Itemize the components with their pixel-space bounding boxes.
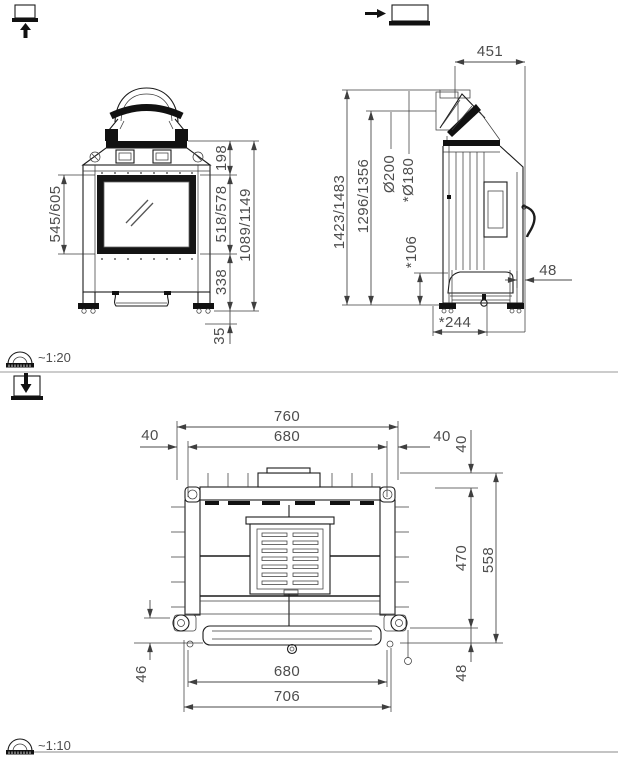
stove-window: [97, 175, 196, 254]
dim-top-inner-width-bottom: 680: [274, 663, 300, 680]
dim-front-feet-height: 35: [211, 327, 228, 345]
side-view-drawing: 451 1423/1483 1296/1356 Ø200 *Ø180 *106 …: [331, 43, 572, 336]
dim-front-glass-height: 545/605: [47, 185, 64, 242]
technical-drawing-page: 545/605 198 518/578 338 35 1089/1149: [0, 0, 618, 760]
dim-side-flue-outer-dia: Ø200: [381, 155, 398, 193]
side-view-icon: [365, 5, 430, 26]
dim-side-base-height: *106: [403, 236, 420, 268]
front-view-drawing: 545/605 198 518/578 338 35 1089/1149: [47, 88, 259, 345]
top-view-icon: [11, 373, 43, 400]
dim-side-rear-offset: 48: [539, 262, 557, 279]
dim-side-base-depth: *244: [439, 314, 471, 331]
protractor-icon-2: [6, 739, 34, 755]
dim-top-margin-top: 40: [453, 435, 470, 453]
dim-top-frame-width: 706: [274, 688, 300, 705]
scale-label-front-side: ~1:20: [38, 350, 71, 365]
front-view-icon: [12, 5, 38, 38]
dim-top-overall-depth: 558: [480, 547, 497, 573]
protractor-icon-1: [6, 352, 34, 368]
dim-top-body-depth: 470: [453, 545, 470, 571]
dim-front-top-section: 198: [213, 145, 230, 171]
dim-front-base-height: 338: [213, 269, 230, 295]
dim-top-front-offset-right: 48: [453, 664, 470, 682]
dim-side-total-height: 1423/1483: [331, 175, 348, 250]
dim-front-door-height: 518/578: [213, 185, 230, 242]
dim-top-overall-width: 760: [274, 408, 300, 425]
dim-front-total-height: 1089/1149: [237, 188, 254, 261]
dim-top-margin-left: 40: [141, 427, 159, 444]
dim-side-flue-inner-dia: *Ø180: [400, 158, 417, 203]
dim-side-top-depth: 451: [477, 43, 503, 60]
dim-top-front-offset-left: 46: [133, 665, 150, 683]
dim-side-flue-height: 1296/1356: [355, 159, 372, 234]
dim-top-inner-width-top: 680: [274, 428, 300, 445]
dim-top-margin-right: 40: [433, 428, 451, 445]
scale-label-top: ~1:10: [38, 738, 71, 753]
top-view-drawing: 760 680 40 40 40 470 558 48 46 680: [133, 408, 503, 712]
